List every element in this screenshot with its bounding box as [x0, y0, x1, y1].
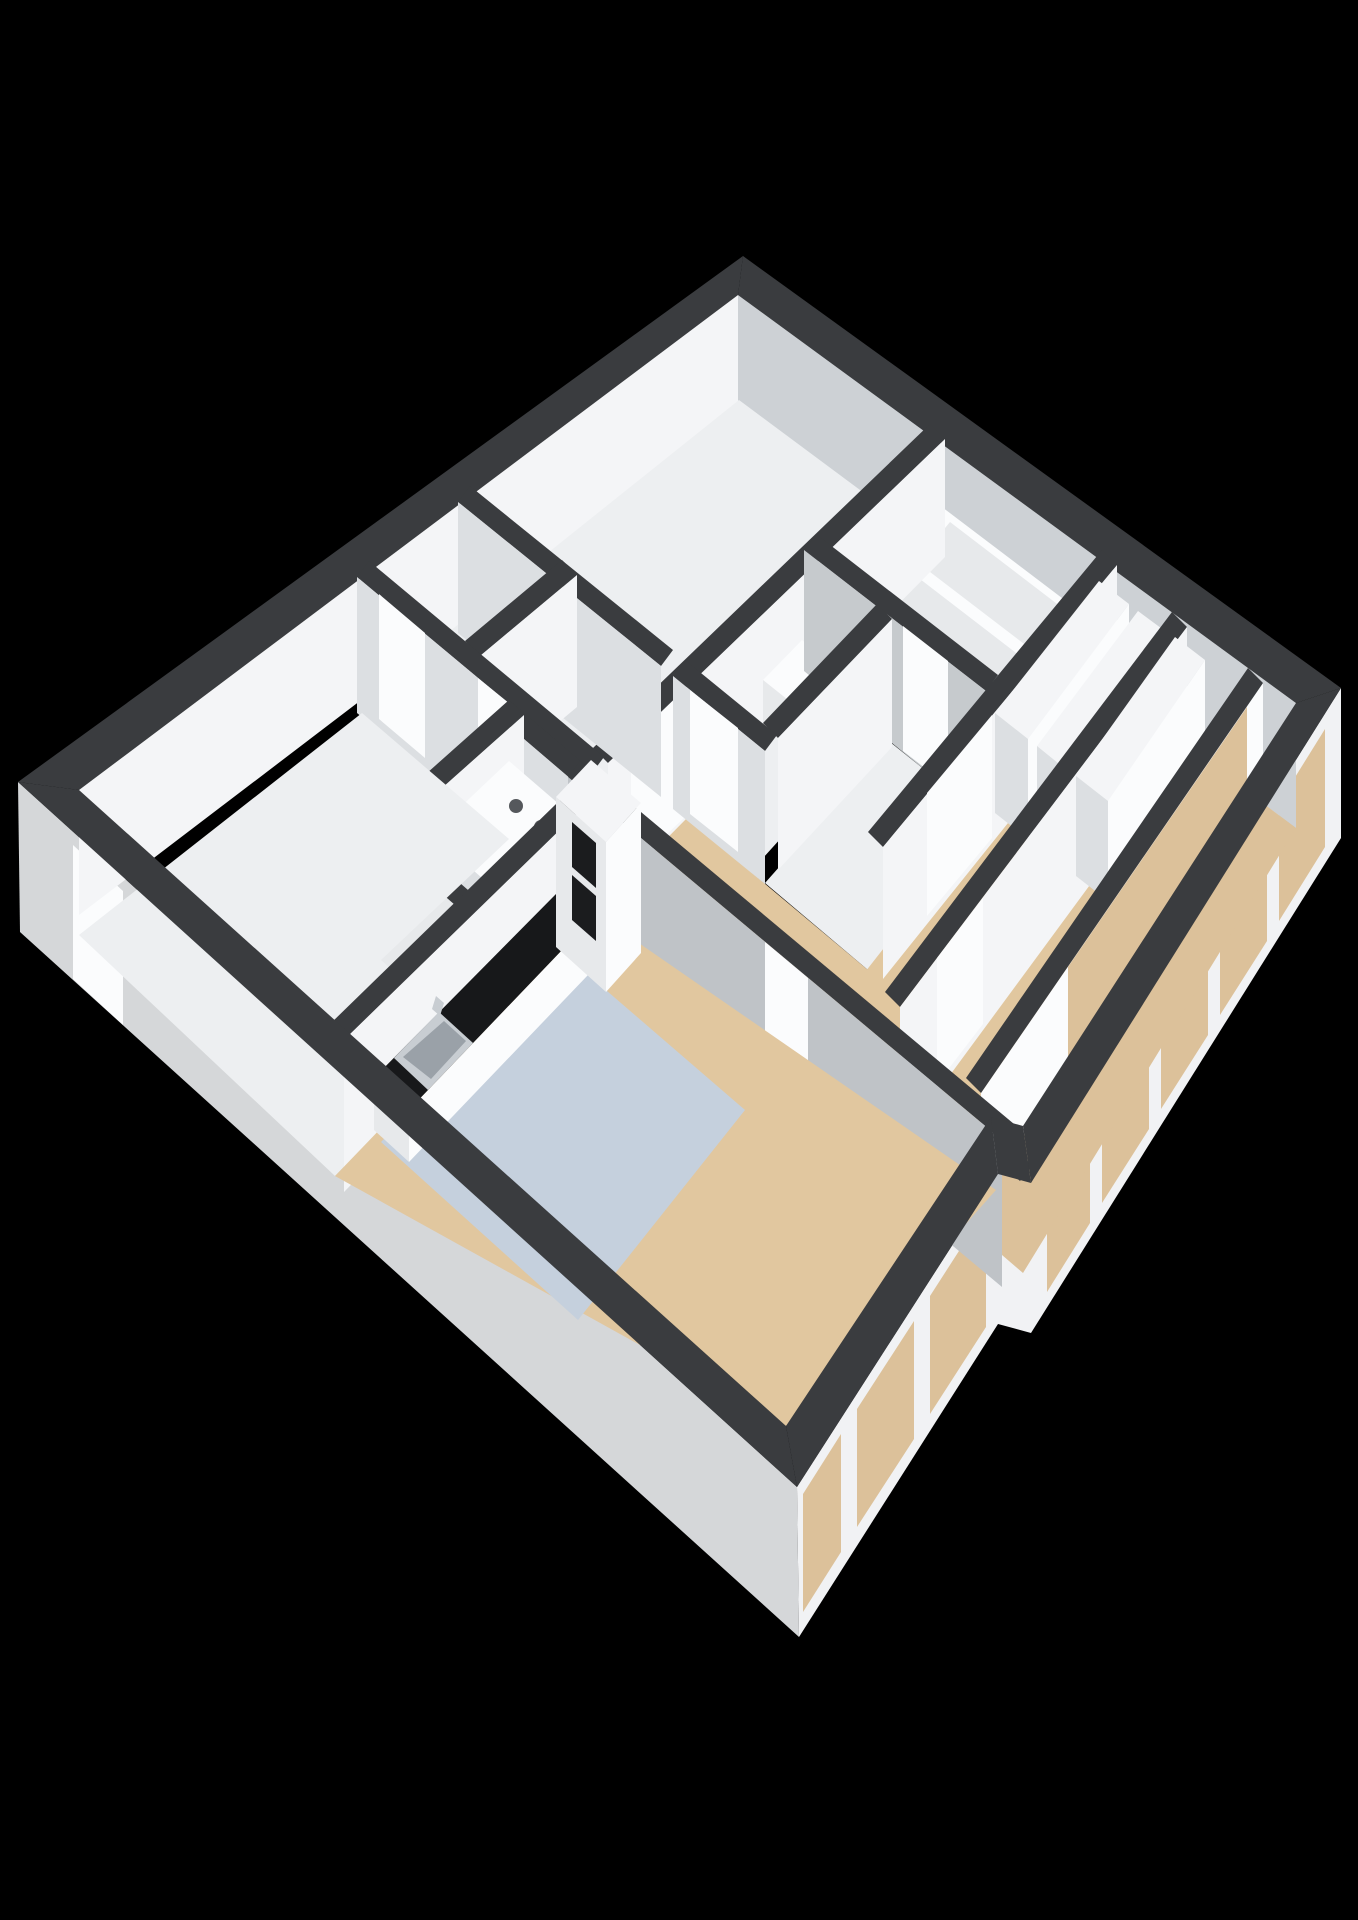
- floorplan-scene: [0, 0, 1358, 1920]
- floorplan-3d-render: [0, 0, 1358, 1920]
- boiler-knob-1: [509, 799, 523, 813]
